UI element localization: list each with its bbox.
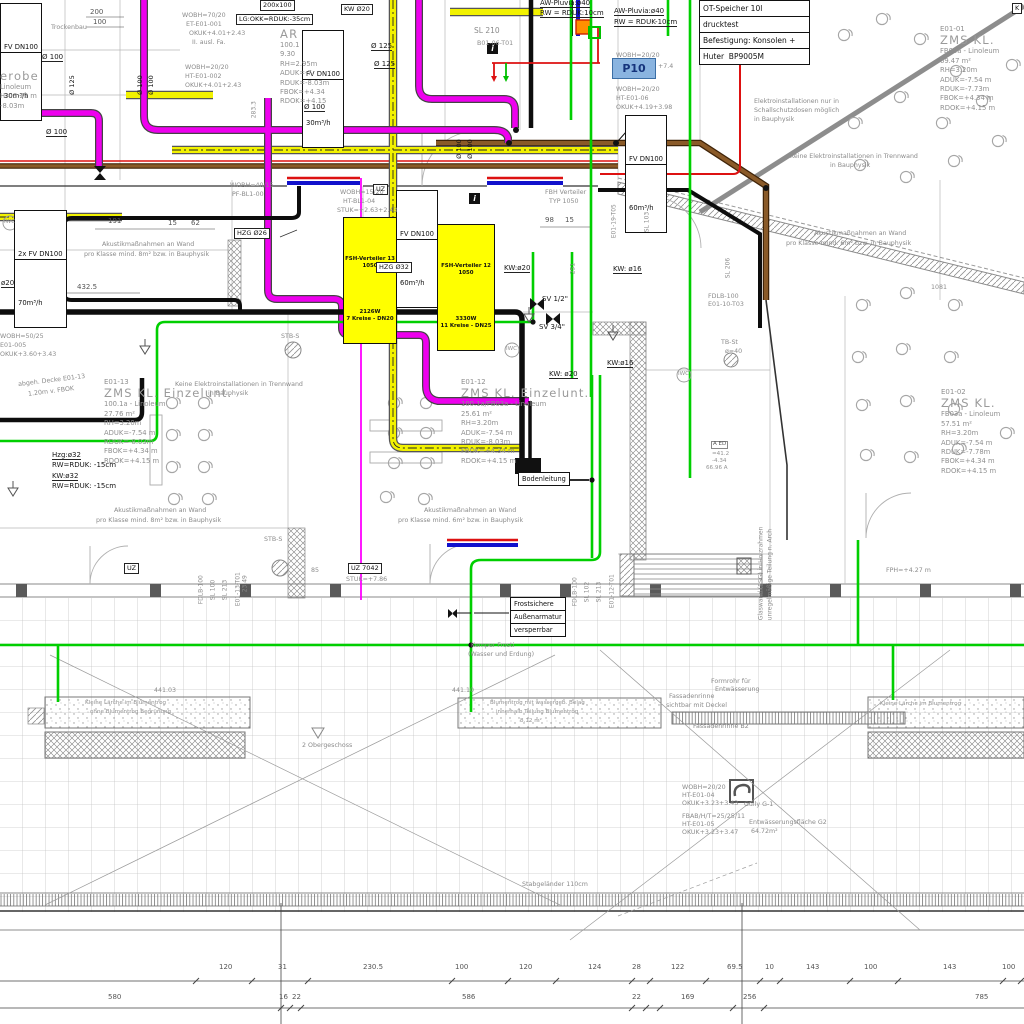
plan-label: Elektroinstallationen nur in: [754, 99, 839, 106]
plan-label: Entwässerungsfläche G2: [749, 820, 827, 827]
plan-label: 441.10: [452, 688, 474, 695]
plan-label: 64.72m²: [751, 829, 778, 836]
room-annotation-line: ZMS KL. Einzelunt.: [461, 387, 589, 400]
plan-label: SL 213: [223, 580, 229, 601]
room-annotation-line: FB03a - Linoleum: [940, 47, 999, 56]
plan-label: E01-13-T01: [236, 572, 242, 606]
room-annotation-line: ZMS KL.: [940, 34, 999, 47]
terrace-paving: [0, 584, 1024, 940]
plan-label: KW:ø16: [607, 360, 633, 368]
plan-label: FDLB-100: [708, 294, 739, 301]
plan-label: 31: [278, 964, 287, 971]
room-annotation-line: ADUK=-7.54 m: [940, 76, 999, 85]
plan-label: 432.5: [77, 284, 97, 291]
plan-label: AW-Pluvia:ø40: [540, 0, 590, 8]
plan-label: 16: [279, 994, 288, 1001]
plan-label: STB-S: [264, 537, 282, 544]
plan-label: Ø 100: [304, 104, 325, 112]
room-annotation: E01-12ZMS KL. Einzelunt.100.1a/FB03a - L…: [461, 378, 589, 466]
plan-label: SL 103: [645, 212, 651, 233]
plan-label: 10: [765, 964, 774, 971]
plan-label: KW:ø20: [504, 265, 530, 273]
valve-type: 2x FV DN100: [15, 249, 66, 260]
plan-label: SV 1/2": [542, 296, 568, 303]
room-annotation: AR100.19.30RH=2.95mADUK=-7.RDUK=-8.03mFB…: [280, 28, 329, 107]
room-annotation-line: FBOK=+4.34 m: [461, 447, 589, 456]
room-annotation-line: ADUK=-7.: [280, 69, 329, 78]
gully-drain: [730, 780, 753, 802]
railing-hatch: [0, 894, 1024, 906]
plan-label: OKUK+4.01+2.43: [189, 31, 245, 38]
plan-label: unregelmäßige Teilung n. Arch: [768, 529, 774, 620]
room-annotation-line: ADUK=-7.54 m: [941, 439, 1000, 448]
plan-label: pro Klasse mind. 6m² bzw. in Bauphysik: [786, 241, 911, 248]
valve-type: FV DN100: [397, 229, 437, 240]
valve-type: FV DN100: [1, 42, 41, 53]
plan-label: 124: [588, 964, 601, 971]
air-valve-box: 2x FV DN100 70m³/h: [14, 210, 67, 328]
plan-label: HT-E01-05: [682, 822, 715, 829]
facade-piers: [16, 584, 1021, 597]
plan-label: Trockenbau: [51, 25, 87, 32]
plan-label: SL 206: [726, 258, 732, 279]
room-annotation-line: 100.1a/FB03a - Linoleum: [461, 400, 589, 409]
plan-label: PF-BL1-00: [232, 192, 264, 199]
plan-label: SL 210: [474, 27, 500, 35]
room-annotation-line: H= 3.29 m: [0, 92, 39, 101]
room-annotation-line: Linoleum: [0, 83, 39, 92]
plan-label: 122: [671, 964, 684, 971]
plan-label: 85: [311, 568, 319, 575]
plan-label: Fassadenrinne B2: [693, 724, 749, 731]
plan-label: ø20: [1, 280, 14, 288]
frost-proof-valve-box: Frostsichere Außenarmatur versperrbar: [510, 597, 566, 637]
room-annotation-line: RDOK=+4.15 m: [941, 467, 1000, 476]
plan-label: 580: [108, 994, 121, 1001]
heating-manifold-box: FSH-Verteiler 131050 2126W7 Kreise - DN2…: [343, 217, 397, 344]
plan-label: Keine Elektroinstallationen in Trennwand: [790, 154, 918, 161]
plan-label: WOBH=20/20: [616, 53, 660, 60]
plan-label: Schallschutzdosen möglich: [754, 108, 839, 115]
plan-label: Fassadenrinne: [669, 694, 714, 701]
plan-label: 2 Obergeschoss: [302, 743, 352, 750]
plan-label: II. ausl. Fa.: [192, 40, 226, 47]
plan-label: Ø 100: [467, 139, 474, 159]
plan-label: Akustikmaßnahmen an Wand: [102, 242, 194, 249]
room-annotation-line: FB03a - Linoleum: [941, 410, 1000, 419]
plan-label: 62: [191, 220, 200, 227]
plan-label: 15: [168, 220, 177, 227]
plan-label: 100: [1002, 964, 1015, 971]
plan-label: UZ 7042: [348, 563, 382, 574]
note-row: Huter BP9005M: [700, 49, 809, 64]
room-annotation-line: RDOK=+4.15 m: [940, 104, 999, 113]
info-icon: i: [469, 193, 480, 204]
plan-label: 28: [632, 964, 641, 971]
plan-label: OKUK+3.23+3.47: [682, 830, 738, 837]
room-annotation-line: RDUK=-8.03m: [280, 79, 329, 88]
plan-label: SL 102: [585, 582, 591, 603]
plan-label: OKUK+4.19+3.98: [616, 105, 672, 112]
plan-label: Glaswand (ESG) in Holzrahmen: [759, 527, 765, 621]
room-annotation-line: RH=3.20m: [461, 419, 589, 428]
plan-label: -4.34: [712, 459, 726, 465]
plan-label: ø=40: [725, 349, 742, 356]
valve-flow: 60m³/h: [397, 278, 437, 288]
plan-label: 22: [292, 994, 301, 1001]
plan-label: B01-06-T01: [477, 41, 513, 48]
plan-label: E01-12-T01: [610, 574, 616, 608]
note-row: Befestigung: Konsolen +: [700, 33, 809, 49]
plan-label: OKUK+4.01+2.43: [185, 83, 241, 90]
column: [285, 342, 301, 358]
plan-label: 230.5: [363, 964, 383, 971]
room-annotation-line: RDUK=-8.03m: [104, 438, 232, 447]
room-annotation-line: 69.47 m²: [940, 57, 999, 66]
plan-label: Formrohr für: [711, 679, 751, 686]
p10-marker: P10: [612, 58, 656, 79]
plan-label: Keine Elektroinstallationen in Trennwand: [175, 382, 303, 389]
plan-label: 66.96 A: [706, 466, 728, 472]
plan-label: WOBH=40/15: [230, 183, 274, 190]
plan-label: TB-St: [721, 340, 738, 347]
plan-label: HT-E01-06: [616, 96, 649, 103]
plan-label: Kemper Frosti: [471, 643, 514, 650]
valve-flow: 70m³/h: [15, 298, 66, 308]
plan-label: OKUK+3.23+3.43: [682, 801, 738, 808]
plan-label: FPH=+4.27 m: [886, 568, 931, 575]
plan-label: IWC: [678, 372, 689, 378]
plan-label: A ED: [711, 441, 728, 449]
plan-label: AW-Pluvia:ø40: [614, 8, 664, 16]
plan-label: 441.03: [154, 688, 176, 695]
plan-label: 586: [462, 994, 475, 1001]
plan-label: E01-19-T05: [612, 204, 618, 238]
plan-label: FDLB-100: [199, 575, 205, 604]
plan-label: HZG Ø32: [376, 262, 412, 273]
plan-label: +7.4: [658, 64, 673, 71]
plan-label: pro Klasse mind. 8m² bzw. in Bauphysik: [84, 252, 209, 259]
room-annotation-line: FBOK=+4.34: [280, 88, 329, 97]
room-annotation-line: RDUK=-7.78m: [941, 448, 1000, 457]
plan-label: FBH Verteiler: [545, 190, 586, 197]
plan-label: RW = RDUK:10cm: [540, 10, 604, 18]
plan-label: 23.49: [243, 575, 249, 592]
plan-label: Akustikmaßnahmen an Wand: [114, 508, 206, 515]
plan-label: Ø 125: [69, 75, 76, 95]
room-annotation-line: RDOK=+4.15 m: [104, 457, 232, 466]
plan-label: 100: [864, 964, 877, 971]
plan-label: in Bauphysik: [754, 117, 794, 124]
floor-plan-canvas: OT-Speicher 10l drucktest Befestigung: K…: [0, 0, 1024, 1024]
plan-label: Stabgeländer 110cm: [522, 882, 588, 889]
plan-label: Ø 100: [456, 139, 463, 159]
plan-label: RW=RDUK: -15cm: [52, 462, 116, 469]
room-annotation-line: FBOK=+4.34 m: [941, 457, 1000, 466]
storage-note-box: OT-Speicher 10l drucktest Befestigung: K…: [699, 0, 810, 65]
plan-label: KW: ø20: [549, 371, 578, 379]
plan-label: Gully G-1: [744, 802, 773, 809]
plan-label: =41.2: [712, 452, 729, 458]
plan-label: HZG Ø26: [234, 228, 270, 239]
plan-label: Blumentrog mit wassergeb. Belag: [490, 701, 585, 707]
plan-label: 22: [632, 994, 641, 1001]
plan-label: 256: [743, 994, 756, 1001]
plan-label: 200: [90, 9, 103, 16]
plan-label: 120: [519, 964, 532, 971]
plan-label: KW: ø16: [613, 266, 642, 274]
plan-label: 69.5: [727, 964, 743, 971]
plan-label: 200x100: [260, 0, 295, 11]
plan-label: (Wasser und Erdung): [468, 652, 534, 659]
room-annotation-line: ADUK=-7.54 m: [104, 429, 232, 438]
plan-label: WOBH=50/25: [0, 334, 44, 341]
plan-label: E01-005: [0, 343, 26, 350]
plan-label: 15: [565, 217, 574, 224]
plan-label: WOBH=20/20: [616, 87, 660, 94]
room-annotation-line: AR: [280, 28, 329, 41]
plan-label: HT-E01-04: [682, 793, 715, 800]
plan-label: KW Ø20: [341, 4, 373, 15]
plan-label: IWC: [4, 220, 15, 226]
room-annotation-line: ADUK=-7.54 m: [461, 429, 589, 438]
plan-label: SL 100: [211, 580, 217, 601]
room-annotation-line: 9.30: [280, 50, 329, 59]
room-annotation-line: FBOK=+4.34 m: [104, 447, 232, 456]
plan-label: FBAB/H/T=25/25/11: [682, 814, 745, 821]
plan-label: RW = RDUK-10cm: [614, 19, 677, 27]
diagonal-wall: [618, 182, 1024, 294]
plan-label: KW:ø32: [52, 473, 78, 481]
plan-label: TYP 1050: [549, 199, 579, 206]
plan-label: innerhalb Teilung Blumentrog: [496, 710, 578, 716]
room-annotation-line: RH=3.20m: [941, 429, 1000, 438]
room-annotation-line: RDUK=-7.73m: [940, 85, 999, 94]
room-annotation-line: RDUK=-8.03m: [461, 438, 589, 447]
plan-label: E01-10-T03: [708, 302, 744, 309]
heating-manifold-box: FSH-Verteiler 121050 3330W11 Kreise - DN…: [437, 224, 495, 351]
plan-label: in Bauphysik: [830, 163, 870, 170]
plan-label: pro Klasse mind. 8m² bzw. in Bauphysik: [96, 518, 221, 525]
plan-label: Akustikmaßnahmen an Wand: [814, 231, 906, 238]
plan-label: Hzg:ø32: [52, 452, 81, 460]
room-annotation: erobeLinoleumH= 3.29 m-8.03m: [0, 70, 39, 111]
room-annotation-line: -8.03m: [0, 102, 39, 111]
room-annotation-line: FBOK=+4.34 m: [940, 94, 999, 103]
note-row: drucktest: [700, 17, 809, 33]
plan-label: OKUK+3.60+3.43: [0, 352, 56, 359]
plan-label: 169: [681, 994, 694, 1001]
room-annotation-line: RH=3.20m: [104, 419, 232, 428]
plan-label: 8.12 m²: [520, 719, 542, 725]
room-annotation-line: 27.76 m²: [104, 410, 232, 419]
room-annotation-line: 57.51 m²: [941, 420, 1000, 429]
plan-label: IWC: [506, 347, 517, 353]
room-annotation-line: 100.1a - Linoleum: [104, 400, 232, 409]
plan-label: 191: [108, 218, 121, 225]
plan-label: STUK=+7.86: [346, 577, 387, 584]
plan-label: HT-BL1-04: [343, 199, 375, 206]
plan-label: FDLB-100: [573, 577, 579, 606]
room-annotation-line: ZMS KL.: [941, 397, 1000, 410]
room-annotation-line: RDOK=+4.15 m: [461, 457, 589, 466]
note-row: OT-Speicher 10l: [700, 1, 809, 17]
plan-label: ET-E01-001: [186, 22, 222, 29]
air-valve-box: FV DN100 60m³/h: [396, 190, 438, 308]
plan-label: Akustikmaßnahmen an Wand: [424, 508, 516, 515]
plan-label: 1081: [931, 285, 947, 292]
plan-label: SL 213: [597, 582, 603, 603]
plan-label: LG:OKK=RDUK:-35cm: [236, 14, 313, 25]
plan-label: WOBH=20/20: [682, 785, 726, 792]
plan-label: Ø 100: [42, 54, 63, 62]
plan-label: pro Klasse mind. 6m² bzw. in Bauphysik: [398, 518, 523, 525]
plan-label: sichtbar mit Deckel: [666, 703, 727, 710]
plan-label: K: [1012, 3, 1022, 14]
plan-label: Ø 100: [148, 75, 155, 95]
plan-label: STUK=+2.63+2.43: [337, 208, 397, 215]
plan-label: WOBH=20/20: [185, 65, 229, 72]
plan-label: 283.3: [252, 101, 258, 118]
room-annotation-line: 25.61 m²: [461, 410, 589, 419]
valve-flow: 30m³/h: [303, 118, 343, 128]
plan-label: in Bauphysik: [208, 391, 248, 398]
plan-label: Ø 125: [374, 61, 395, 69]
plan-label: Entwässerung: [715, 687, 759, 694]
plan-label: Ø 100: [46, 129, 67, 137]
plan-label: 100: [93, 19, 106, 26]
plan-label: Kleine Lärche im Blumentrog: [880, 702, 961, 708]
plan-label: Kleine Lärche im Blumentrog: [85, 701, 166, 707]
room-annotation-line: erobe: [0, 70, 39, 83]
plan-label: SV 3/4": [539, 324, 565, 331]
plan-label: 251: [571, 263, 577, 274]
floor-pipe-box: Bodenleitung: [518, 472, 570, 486]
room-annotation: E01-01ZMS KL.FB03a - Linoleum69.47 m²RH=…: [940, 25, 999, 113]
plan-label: 120: [219, 964, 232, 971]
plan-label: 785: [975, 994, 988, 1001]
room-annotation-line: 100.1: [280, 41, 329, 50]
plan-label: UZ: [124, 563, 139, 574]
plan-label: RW=RDUK: -15cm: [52, 483, 116, 490]
plan-label: Ø 125: [371, 43, 392, 51]
room-annotation: E01-02ZMS KL.FB03a - Linoleum57.51 m²RH=…: [941, 388, 1000, 476]
plan-label: HT-E01-002: [185, 74, 222, 81]
plan-label: STB-S: [281, 334, 299, 341]
plan-label: 100: [455, 964, 468, 971]
plan-label: WOBH=15/20: [340, 190, 384, 197]
plan-label: 143: [943, 964, 956, 971]
plan-label: Ø 100: [137, 75, 144, 95]
room-annotation-line: RH=2.95m: [280, 60, 329, 69]
valve-type: FV DN100: [626, 154, 666, 165]
plan-label: WOBH=70/20: [182, 13, 226, 20]
column: [272, 560, 288, 576]
plan-label: ohne Blumentrog Begrünung: [90, 710, 171, 716]
plan-label: 143: [806, 964, 819, 971]
room-annotation-line: RH=3.20m: [940, 66, 999, 75]
plan-label: 98: [545, 217, 554, 224]
